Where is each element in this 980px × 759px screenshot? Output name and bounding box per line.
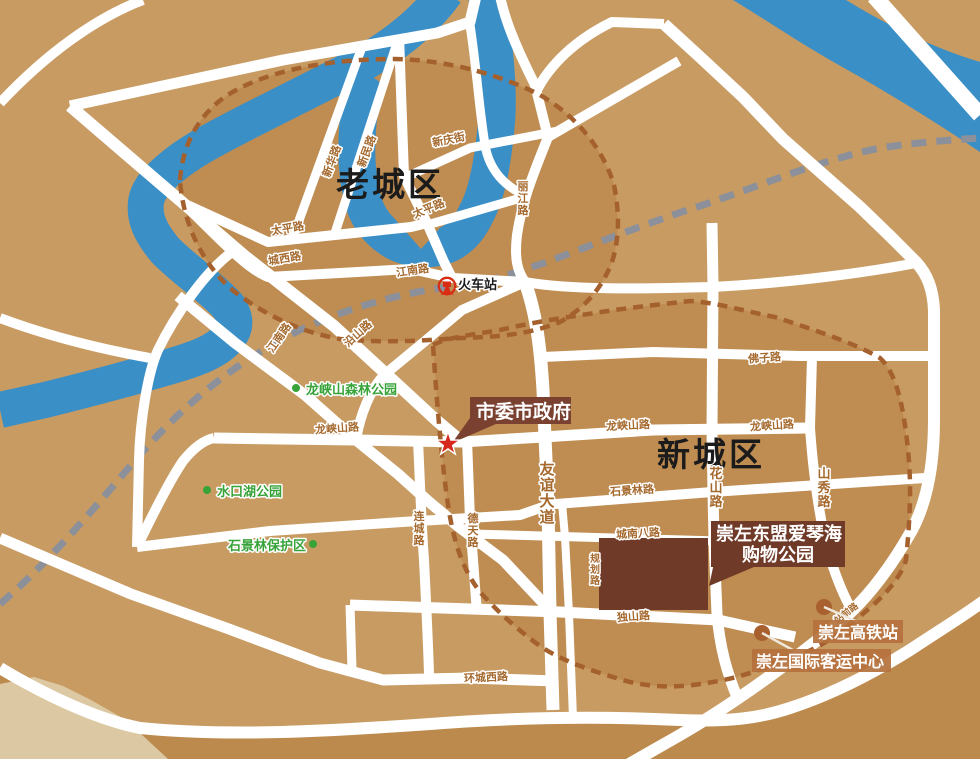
svg-text:丽江路: 丽江路	[518, 180, 530, 217]
svg-text:规划路: 规划路	[590, 552, 601, 587]
svg-text:火车站: 火车站	[458, 277, 497, 292]
svg-text:购物公园: 购物公园	[742, 544, 814, 565]
svg-text:石景林保护区: 石景林保护区	[227, 538, 306, 553]
svg-text:龙峡山森林公园: 龙峡山森林公园	[306, 382, 397, 397]
svg-text:老城区: 老城区	[336, 166, 444, 203]
svg-text:德天路: 德天路	[467, 511, 480, 549]
svg-text:崇左东盟爱琴海: 崇左东盟爱琴海	[716, 523, 842, 544]
svg-text:市委市政府: 市委市政府	[476, 400, 571, 423]
svg-text:花山路: 花山路	[709, 466, 723, 509]
svg-text:连城路: 连城路	[414, 509, 426, 547]
svg-text:崇左高铁站: 崇左高铁站	[818, 623, 898, 642]
svg-text:山秀路: 山秀路	[816, 466, 831, 509]
svg-text:水口湖公园: 水口湖公园	[217, 484, 282, 499]
svg-text:崇左国际客运中心: 崇左国际客运中心	[756, 652, 884, 671]
svg-text:友谊大道: 友谊大道	[539, 460, 554, 526]
